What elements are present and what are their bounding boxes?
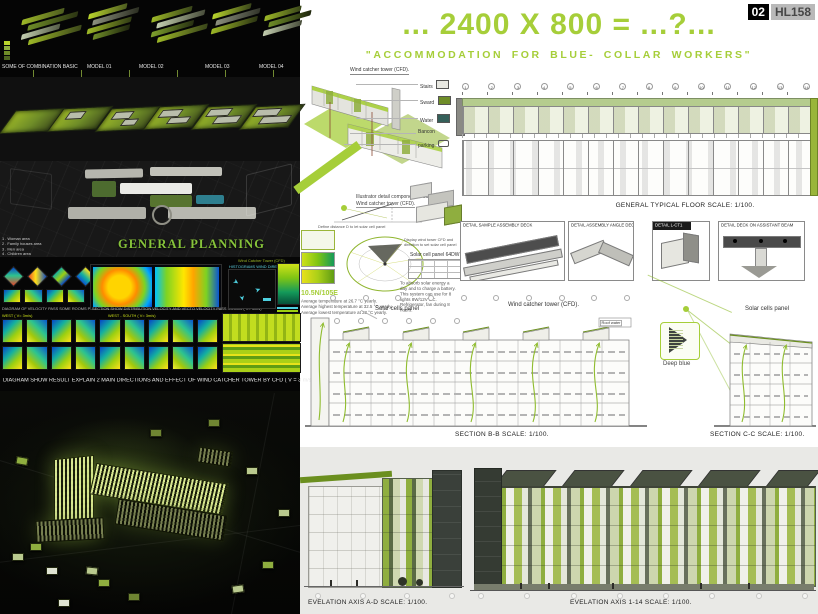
leader-line	[356, 84, 418, 85]
wind-arrow-icon: ➤	[237, 294, 246, 301]
heatmap-tile	[2, 319, 23, 343]
roof-water-label: Roof water	[600, 320, 622, 326]
heatmap-tile	[2, 346, 23, 370]
board-subtitle: "ACCOMMODATION FOR BLUE- COLLAR WORKERS"	[300, 49, 818, 61]
night-render	[0, 391, 300, 614]
scatter-cube	[46, 567, 58, 575]
detail-title: DETAIL DECK ON ASSISTANT BEAM	[721, 223, 793, 228]
grid-number-circle: 9	[672, 83, 679, 90]
plan-pool	[196, 195, 224, 204]
scatter-cube	[12, 553, 24, 561]
room-heatmaps	[3, 289, 85, 303]
heatmap-tile	[75, 319, 96, 343]
detail-box-2: DETAIL ASSEMBLY ANGLE DECK	[568, 221, 634, 281]
deep-blue-label: Deep blue	[663, 361, 690, 367]
scatter-cube	[128, 593, 140, 601]
detail-block	[683, 233, 699, 264]
cfd-rooms-caption: DIAGRAM OF VELOCITY PASS SOME ROOMS PLAN	[2, 307, 98, 312]
board-title: ... 2400 X 800 = ...?...	[300, 8, 818, 42]
scatter-cube	[98, 579, 110, 587]
heatmap-tile	[172, 346, 193, 370]
grid-number-circle: 1	[462, 83, 469, 90]
wind-arrow-icon: ➤	[231, 277, 240, 287]
heatmap-tile	[197, 346, 218, 370]
grid-number-circle: 7	[619, 83, 626, 90]
wind-arrow-icon: ➤	[254, 285, 262, 295]
callout-label: parking	[418, 143, 434, 149]
display-wind-note: Display wind tower CFD and direction to …	[404, 238, 463, 247]
solar-panel-title: Solar cell panel 64DW	[410, 252, 459, 258]
scatter-cube	[278, 509, 290, 517]
grid-number-circle: 3	[514, 83, 521, 90]
bolt-dot	[733, 239, 737, 243]
grid-number-circle: 4	[541, 83, 548, 90]
figure-silhouette	[330, 580, 332, 586]
deep-blue-device-box	[660, 322, 700, 360]
solar-panel-table	[408, 259, 462, 279]
thumb-block	[212, 115, 243, 124]
heatmap-diamond	[27, 266, 48, 287]
scatter-cube	[262, 561, 274, 569]
elevation-114-caption: EVELATION AXIS 1-14 SCALE: 1/100.	[570, 599, 692, 606]
area-list: 1 . Woman area2 . Family houses area3 . …	[2, 237, 41, 257]
heatmap-tile	[197, 319, 218, 343]
grid-circle	[709, 593, 715, 599]
elevation-114-tower	[474, 468, 502, 588]
cfd-main-caption: DIAGRAM SHOW RESULT EXPLAIN 2 MAIN DIREC…	[3, 378, 313, 384]
grid-number-circle: 10	[698, 83, 705, 90]
floorplan-grid-numbers: 1234567891011121314	[462, 83, 810, 90]
callout-parking: parking	[418, 140, 449, 149]
legend-line	[277, 307, 298, 309]
heatmap-tile	[124, 346, 145, 370]
gusset-shape	[741, 266, 777, 278]
ground-line	[304, 586, 464, 587]
row-west-south-label: WEST - SOUTH ( V= 3m/s)	[108, 314, 155, 319]
histogram-panel: ➤ ➤ ➤	[228, 269, 276, 309]
plan-building	[120, 183, 192, 194]
heatmap-tile	[51, 346, 72, 370]
heatmap-tile	[148, 346, 169, 370]
leader-line	[356, 118, 418, 119]
bolt-dot	[759, 239, 763, 243]
elevation-ad-caption: EVELATION AXIS A-D SCALE: 1/100.	[308, 599, 427, 606]
heatmap-tile	[67, 289, 85, 303]
section-bb-caption: SECTION B-B SCALE: 1/100.	[455, 431, 549, 438]
reference-heatmap	[301, 269, 335, 284]
component-axon	[408, 180, 462, 226]
scatter-cube	[246, 467, 258, 475]
louvre-slats	[669, 329, 683, 351]
detail-box-4: DETAIL DECK ON ASSISTANT BEAM	[718, 221, 805, 281]
deck-slab	[598, 242, 634, 267]
reference-box	[301, 230, 335, 250]
heatmap-tile	[26, 346, 47, 370]
figure-silhouette	[520, 583, 522, 589]
heatmap-row-west	[2, 319, 218, 343]
callout-water: Water	[420, 114, 450, 124]
cfd-main-caption-bar: DIAGRAM SHOW RESULT EXPLAIN 2 MAIN DIREC…	[0, 374, 300, 391]
heatmap-tile	[172, 319, 193, 343]
scatter-cube	[150, 429, 162, 437]
callout-bancon: Bancon	[418, 129, 435, 135]
section-cc-caption: SECTION C-C SCALE: 1/100.	[710, 431, 805, 438]
histogram-bar	[263, 298, 271, 301]
context-block	[10, 168, 52, 210]
plan-lower-band	[462, 140, 812, 196]
elevation-ad-light-wing	[308, 486, 384, 588]
legend-line	[277, 310, 298, 312]
legend-swatch	[4, 51, 10, 55]
scatter-cube	[208, 419, 220, 427]
leader-line	[362, 100, 418, 101]
plan-upper-band	[462, 106, 812, 134]
heatmap-tile	[99, 346, 120, 370]
axon-cluster	[146, 0, 214, 48]
diamond-heatmaps	[6, 269, 93, 284]
legend-swatch	[4, 46, 10, 50]
detail-box-1: DETAIL SAMPLE ASSEMBLY DECK	[460, 221, 565, 281]
reference-heatmap	[301, 252, 335, 267]
grid-number-circle: 5	[567, 83, 574, 90]
heatmap-tile	[124, 319, 145, 343]
plan-corridor	[462, 134, 810, 138]
tower-heatmap	[277, 263, 300, 305]
competition-board: SOME OF COMBINATION BASIC MODEL 01 MODEL…	[0, 0, 818, 614]
heatmap-tile	[3, 289, 21, 303]
stairs-icon	[436, 80, 449, 89]
plan-green-cap	[810, 98, 818, 196]
grid-circle	[449, 593, 455, 599]
bolt-dot	[783, 239, 787, 243]
elevation-ad-green-wing	[382, 478, 434, 588]
section-cc-drawing	[712, 300, 818, 432]
ground-line	[470, 590, 816, 591]
panel-general-planning: 1 . Woman area2 . Family houses area3 . …	[0, 161, 300, 257]
grid-number-circle: 2	[488, 83, 495, 90]
plan-building	[150, 167, 222, 176]
grid-circle	[524, 593, 530, 599]
detail-box-3: DETAIL L-CT1	[652, 221, 710, 281]
general-planning-title: GENERAL PLANNING	[118, 237, 265, 252]
grid-number-circle: 12	[750, 83, 757, 90]
detail-title: DETAIL ASSEMBLY ANGLE DECK	[571, 223, 634, 228]
figure-silhouette	[548, 583, 550, 589]
combination-caption: SOME OF COMBINATION BASIC	[2, 64, 78, 70]
panel-cfd-analysis: Wind Catcher Tower (CFD) DIAGRAM OF VELO…	[0, 257, 300, 377]
scatter-cube	[232, 584, 245, 594]
panel-combination-models: SOME OF COMBINATION BASIC MODEL 01 MODEL…	[0, 0, 300, 77]
callout-sward: Sward	[420, 96, 451, 106]
callout-label: Stairs	[420, 84, 433, 90]
scatter-cube	[30, 543, 42, 551]
thumb-block	[64, 111, 86, 120]
car-icon	[438, 140, 449, 147]
define-distance-note: Define distance D to let solar cell pane…	[318, 225, 385, 230]
grid-number-circle: 13	[777, 83, 784, 90]
scatter-cube	[86, 566, 99, 575]
heatmap-strip-block	[222, 343, 301, 373]
callout-label: Bancon	[418, 129, 435, 135]
legend-swatch	[4, 56, 10, 60]
heatmap-tile	[26, 319, 47, 343]
model-label: MODEL 01	[87, 64, 112, 70]
detail-title: DETAIL SAMPLE ASSEMBLY DECK	[463, 223, 532, 228]
heatmap-tile	[99, 319, 120, 343]
figure-silhouette	[700, 583, 702, 589]
heatmap-diamond	[3, 266, 24, 287]
figure-silhouette	[748, 583, 750, 589]
row-west-label: WEST ( V= 3m/s)	[2, 314, 32, 319]
heatmap-block	[93, 267, 152, 307]
plan-building	[85, 168, 143, 178]
heatmap-tile	[148, 319, 169, 343]
scatter-cube	[58, 599, 70, 607]
grid-circle	[802, 593, 808, 599]
grid-number-circle: 14	[803, 83, 810, 90]
figure-silhouette	[356, 580, 358, 586]
callout-stairs: Stairs	[420, 80, 449, 90]
logo-pattern-block	[222, 313, 301, 342]
elevation-114-body	[474, 486, 816, 587]
road-line	[230, 393, 275, 614]
heatmap-row	[3, 289, 85, 303]
plan-building	[168, 207, 256, 219]
heatmap-tile	[46, 289, 64, 303]
leader-line	[350, 133, 416, 134]
plan-lawn	[92, 181, 116, 197]
heatmap-block	[155, 267, 219, 307]
panel-site-iterations	[0, 77, 300, 161]
axon-cluster	[208, 0, 262, 37]
thumb-block	[120, 118, 140, 126]
grid-circle	[756, 593, 762, 599]
callout-label: Sward	[420, 100, 434, 106]
grid-circle	[478, 593, 484, 599]
lit-slab	[35, 517, 104, 543]
heatmap-tile	[51, 319, 72, 343]
elevation-ad-tower	[432, 470, 462, 588]
plan-building	[68, 207, 146, 219]
thumb-block	[166, 116, 192, 124]
tree-silhouette	[398, 577, 407, 586]
lit-slab	[197, 446, 233, 467]
callout-label: Water	[420, 118, 433, 124]
dimension-ticks	[462, 92, 810, 95]
model-label: MODEL 02	[139, 64, 164, 70]
detail-title: DETAIL L-CT1	[655, 223, 682, 228]
grid-number-circle: 6	[593, 83, 600, 90]
legend-swatch	[4, 41, 10, 45]
thumb-block	[258, 115, 293, 124]
heatmap-row-west-south	[2, 346, 218, 370]
axon-cluster	[16, 0, 87, 51]
floorplan-caption: GENERAL TYPICAL FLOOR SCALE: 1/100.	[545, 202, 818, 209]
grid-number-circle: 8	[646, 83, 653, 90]
heatmap-tile	[24, 289, 42, 303]
grid-number-circle: 11	[724, 83, 731, 90]
axon-cluster	[83, 0, 142, 45]
section-heatmap	[90, 264, 222, 310]
tree-silhouette	[416, 579, 423, 586]
heatmap-tile	[75, 346, 96, 370]
section-bb-drawing	[303, 300, 648, 432]
model-legend	[4, 40, 10, 61]
heatmap-diamond	[51, 266, 72, 287]
model-label: MODEL 04	[259, 64, 284, 70]
figure-silhouette	[612, 583, 614, 589]
plan-rotunda	[152, 205, 172, 225]
water-swatch-icon	[437, 114, 450, 123]
sward-swatch-icon	[438, 96, 451, 105]
